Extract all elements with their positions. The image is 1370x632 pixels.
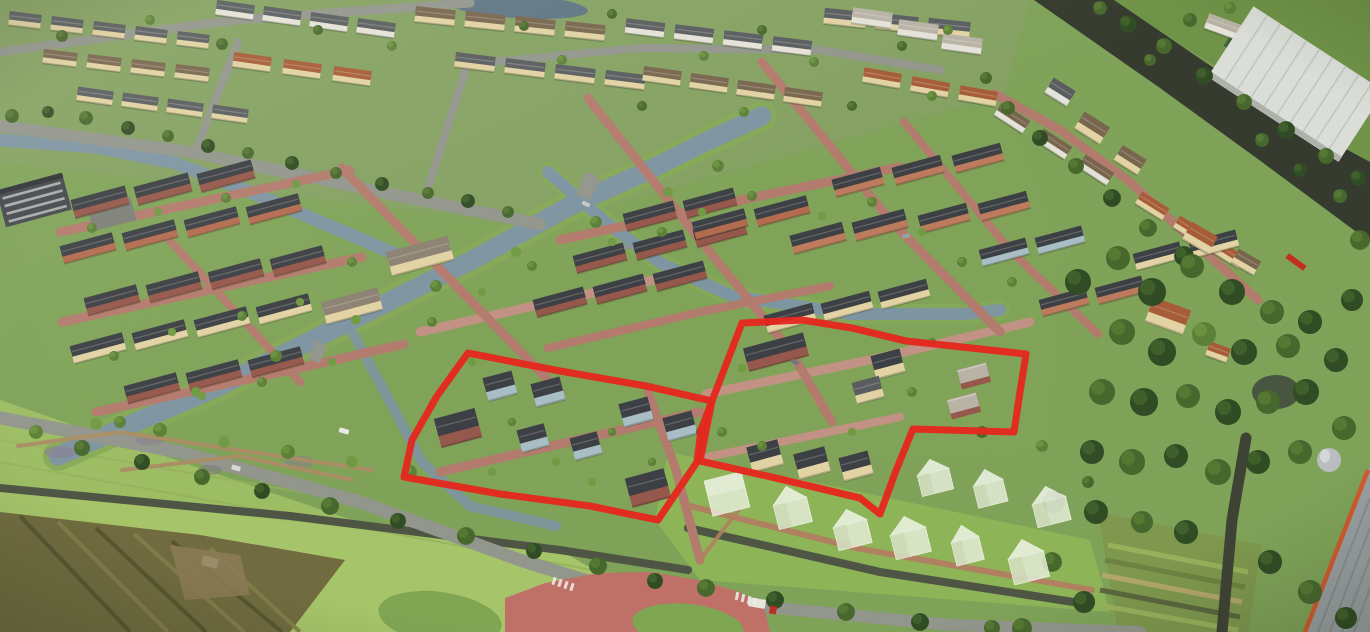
- vignette-overlay: [0, 0, 1370, 632]
- aerial-rendering: [0, 0, 1370, 632]
- aerial-photo-canvas: [0, 0, 1370, 632]
